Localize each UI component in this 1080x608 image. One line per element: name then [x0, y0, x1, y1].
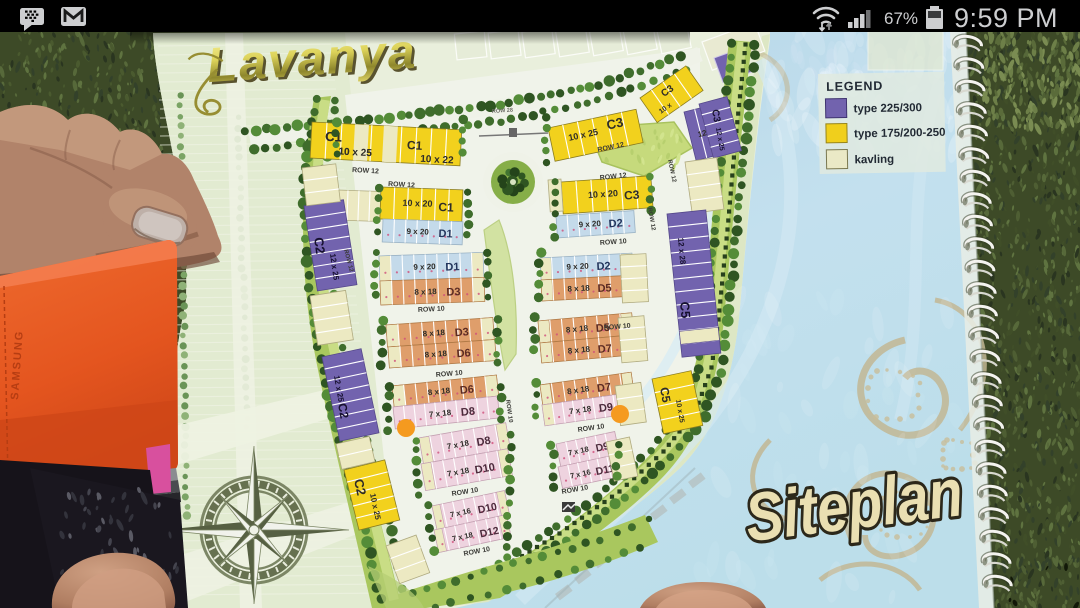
svg-text:ROW 10: ROW 10	[418, 306, 445, 314]
svg-text:type 225/300: type 225/300	[854, 102, 923, 115]
svg-text:C2: C2	[311, 236, 328, 255]
svg-text:8 x 18: 8 x 18	[414, 287, 437, 297]
svg-text:D8: D8	[460, 405, 475, 418]
svg-text:C2: C2	[335, 402, 352, 420]
svg-text:D1: D1	[438, 228, 452, 240]
svg-text:10 x 25: 10 x 25	[338, 146, 372, 159]
svg-text:C1: C1	[438, 200, 454, 215]
svg-text:C5: C5	[657, 386, 674, 404]
svg-text:10 x 20: 10 x 20	[588, 188, 619, 200]
svg-text:D7: D7	[596, 381, 612, 395]
svg-text:9:59 PM: 9:59 PM	[954, 3, 1058, 33]
svg-text:D2: D2	[596, 260, 611, 273]
svg-text:9 x 20: 9 x 20	[578, 219, 601, 230]
svg-text:C3: C3	[709, 109, 722, 124]
svg-text:D3: D3	[454, 326, 469, 339]
svg-text:9 x 20: 9 x 20	[413, 262, 436, 272]
svg-text:kavling: kavling	[854, 154, 894, 167]
svg-text:D7: D7	[597, 343, 612, 356]
svg-text:D6: D6	[459, 383, 474, 396]
svg-text:D2: D2	[608, 217, 623, 230]
svg-text:D8: D8	[476, 435, 492, 449]
svg-text:C5: C5	[677, 301, 693, 319]
svg-text:67%: 67%	[884, 9, 918, 28]
svg-text:D6: D6	[456, 347, 471, 360]
svg-text:8 x 18: 8 x 18	[422, 328, 445, 339]
svg-text:type 175/200-250: type 175/200-250	[854, 127, 946, 141]
svg-text:D3: D3	[446, 286, 460, 298]
svg-text:ROW 12: ROW 12	[388, 181, 415, 189]
svg-text:9 x 20: 9 x 20	[566, 261, 589, 271]
svg-text:C1: C1	[407, 138, 423, 153]
svg-text:9 x 20: 9 x 20	[406, 227, 429, 237]
svg-text:LEGEND: LEGEND	[826, 79, 883, 94]
svg-text:10 x 22: 10 x 22	[420, 154, 454, 167]
svg-text:ROW 12: ROW 12	[352, 167, 379, 175]
svg-text:D1: D1	[445, 261, 459, 273]
svg-text:D5: D5	[597, 282, 612, 295]
svg-text:10 x 20: 10 x 20	[402, 198, 432, 209]
svg-text:8 x 18: 8 x 18	[424, 349, 447, 360]
svg-text:8 x 18: 8 x 18	[567, 283, 590, 293]
svg-text:C3: C3	[624, 188, 641, 203]
